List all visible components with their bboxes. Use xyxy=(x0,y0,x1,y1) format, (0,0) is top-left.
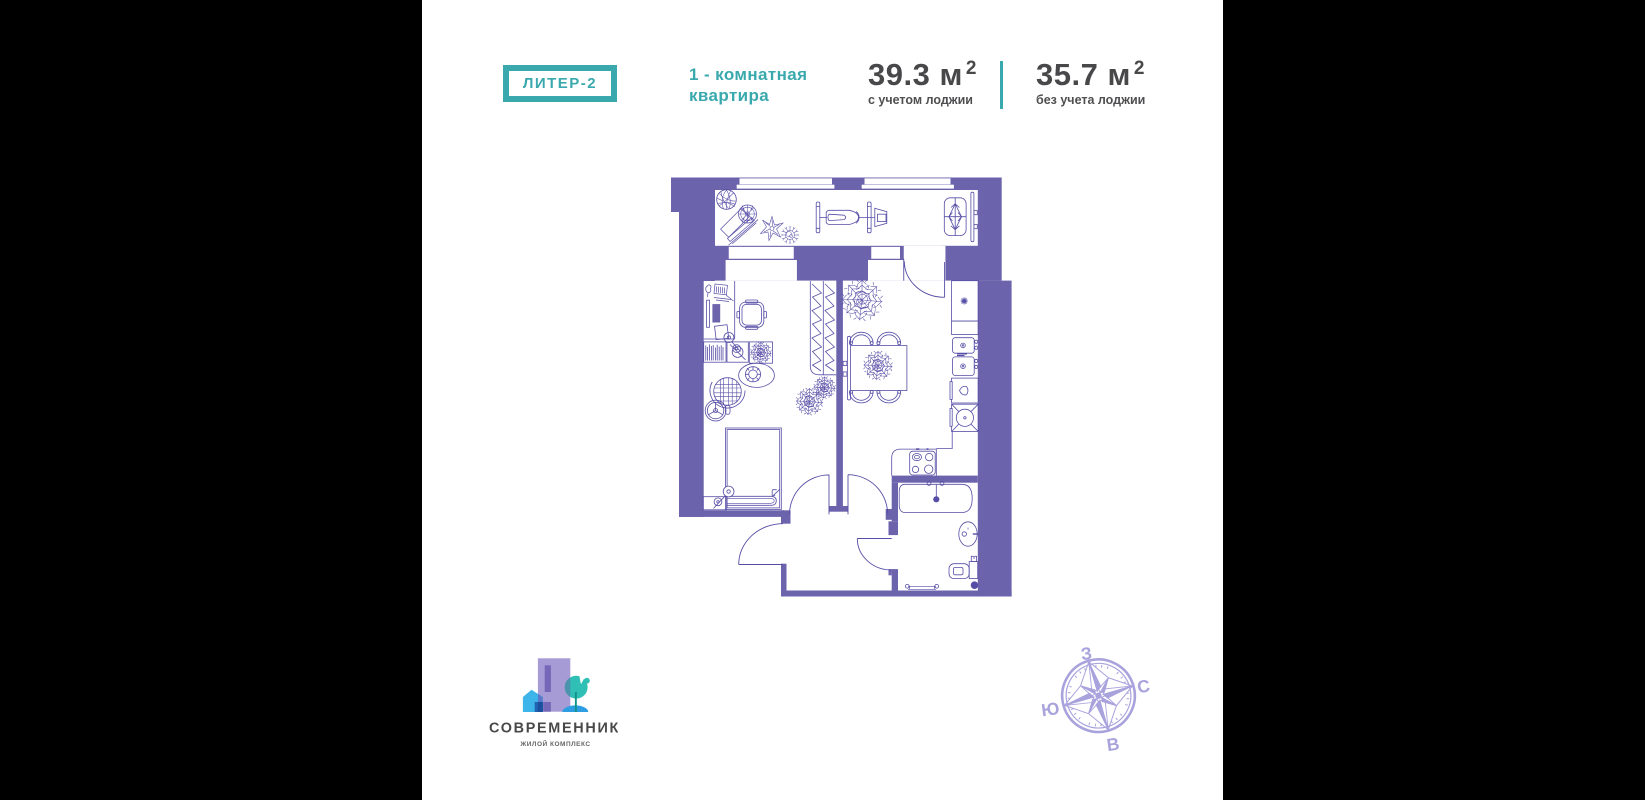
svg-text:ЖИЛОЙ КОМПЛЕКС: ЖИЛОЙ КОМПЛЕКС xyxy=(519,739,590,748)
svg-text:В: В xyxy=(1105,734,1120,756)
svg-text:СОВРЕМЕННИК: СОВРЕМЕННИК xyxy=(489,720,620,736)
svg-text:Ю: Ю xyxy=(1040,698,1061,720)
svg-text:С: С xyxy=(1136,675,1152,697)
svg-text:З: З xyxy=(1080,643,1094,664)
